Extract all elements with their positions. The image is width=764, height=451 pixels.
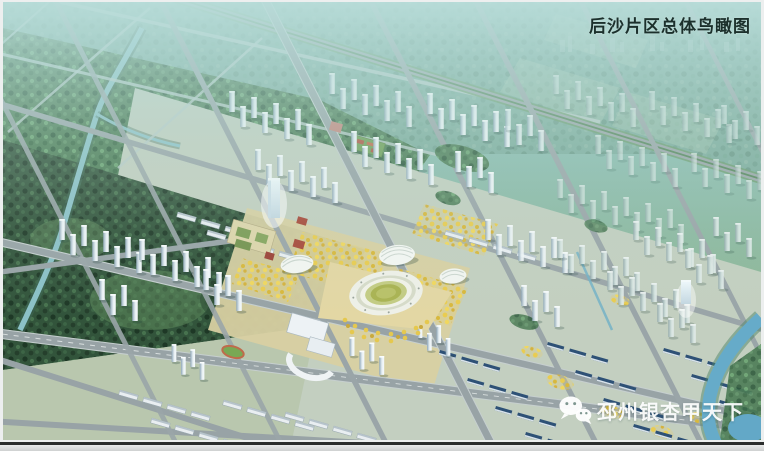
watermark: 邳州银杏甲天下: [558, 395, 744, 425]
birdseye-render-image: 后沙片区总体鸟瞰图 邳州银杏甲天下: [0, 0, 764, 451]
haze-overlay: [3, 2, 761, 440]
watermark-text: 邳州银杏甲天下: [597, 396, 744, 425]
render-canvas: [0, 0, 764, 442]
frame-bottom-strip: [0, 445, 764, 451]
caption-title: 后沙片区总体鸟瞰图: [589, 12, 751, 37]
wechat-icon: [558, 395, 592, 425]
scene-svg: [3, 2, 761, 440]
